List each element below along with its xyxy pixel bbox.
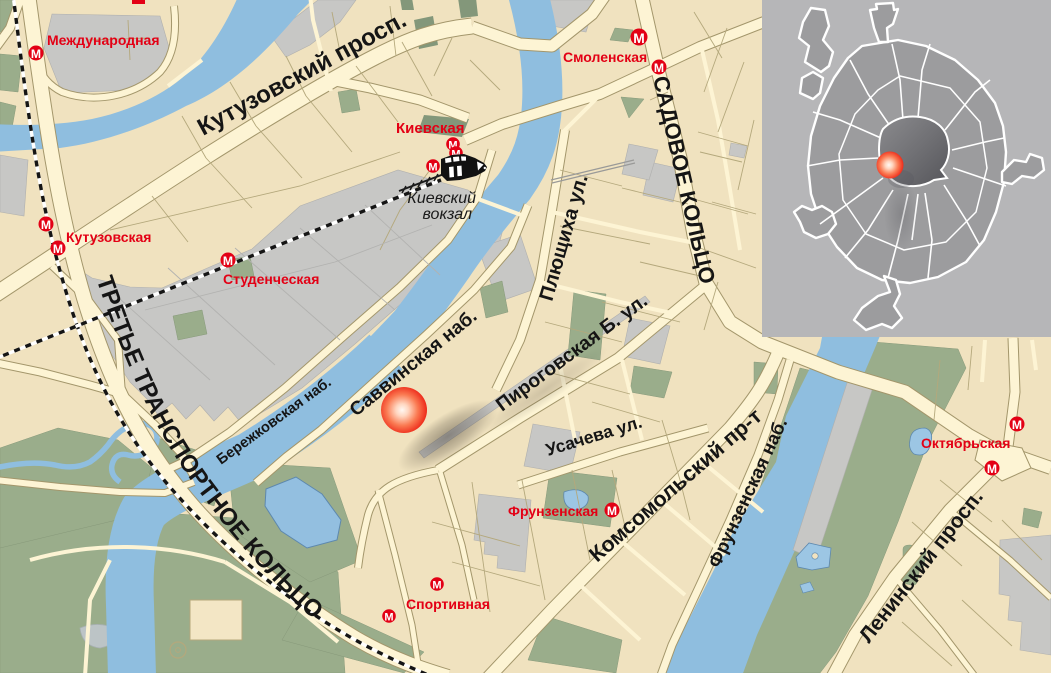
svg-text:Фрунзенская: Фрунзенская <box>508 503 598 519</box>
svg-text:Октябрьская: Октябрьская <box>921 435 1010 451</box>
svg-text:Студенческая: Студенческая <box>223 271 319 287</box>
svg-text:Международная: Международная <box>47 32 160 48</box>
svg-text:вокзал: вокзал <box>423 206 472 223</box>
svg-text:Смоленская: Смоленская <box>563 49 647 65</box>
svg-text:Спортивная: Спортивная <box>406 596 490 612</box>
svg-text:Киевская: Киевская <box>396 120 465 137</box>
svg-text:Киевский: Киевский <box>407 190 476 207</box>
svg-text:Кутузовская: Кутузовская <box>66 229 151 245</box>
